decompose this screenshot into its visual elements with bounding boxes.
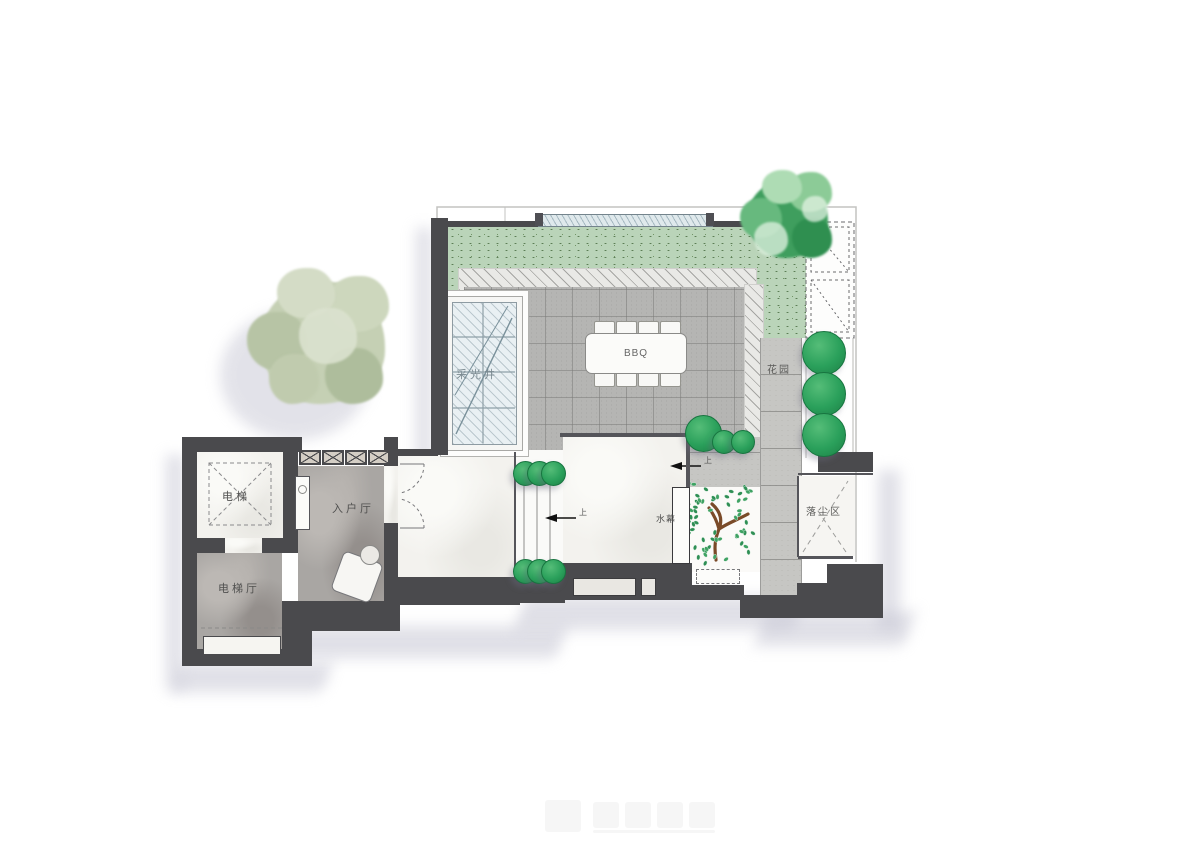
wall [827,564,883,618]
wall [282,601,312,666]
wall-thin [797,476,799,557]
wall-cabinet [295,476,310,530]
wall-thin [798,556,853,559]
garden-label: 花园 [767,361,791,376]
chair [660,372,681,387]
window-cap-right [706,213,714,226]
wall [197,538,225,553]
wall [262,538,298,553]
wall-niche [573,578,636,596]
chair [616,372,637,387]
floor-plan-canvas: 上 上 BBQ [0,0,1200,848]
round-tree [802,413,846,457]
wall [182,437,197,666]
planter-dashed [696,569,740,584]
wall [398,449,438,456]
round-tree [802,331,846,375]
elevator-hall-label: 电梯厅 [218,580,260,596]
bbq-label: BBQ [624,348,648,359]
entry-bench [203,636,281,655]
cabinet-xbox [345,450,367,465]
wall [686,585,744,600]
up-label-1: 上 [579,508,587,517]
round-tree [802,372,846,416]
entry-hall-label: 入户厅 [332,500,374,516]
wall-thin [798,473,873,475]
round-tree [731,430,755,454]
elevator-label: 电梯 [222,488,250,504]
step-arrow-2: 上 [670,456,712,470]
plan-linework: 上 上 [0,0,1200,848]
wall [431,218,448,455]
canopy-tree-top-right [740,170,836,266]
water-curtain-strip [672,487,690,564]
wall [797,583,827,618]
cabinet-xbox [322,450,344,465]
canopy-tree-left [247,268,399,420]
watermark [545,798,745,834]
chair [594,372,615,387]
bbq-table: BBQ [585,333,687,374]
wall-thin [560,433,690,437]
wall [740,595,797,618]
light-well-label: 采光井 [456,366,498,382]
cabinet-xbox [368,450,390,465]
pouf [360,545,380,565]
cabinet-xbox [299,450,321,465]
clerestory-window [538,214,713,227]
step-arrow-1: 上 [545,508,587,522]
shrub [541,461,566,486]
wall [390,577,520,605]
shrub [541,559,566,584]
chair [638,372,659,387]
water-curtain-label: 水幕 [656,512,676,525]
up-label-2: 上 [704,456,712,465]
double-door-swing [400,464,424,528]
window-cap-left [535,213,543,226]
wall-niche-small [641,578,656,596]
dust-area-label: 落尘区 [806,503,842,518]
